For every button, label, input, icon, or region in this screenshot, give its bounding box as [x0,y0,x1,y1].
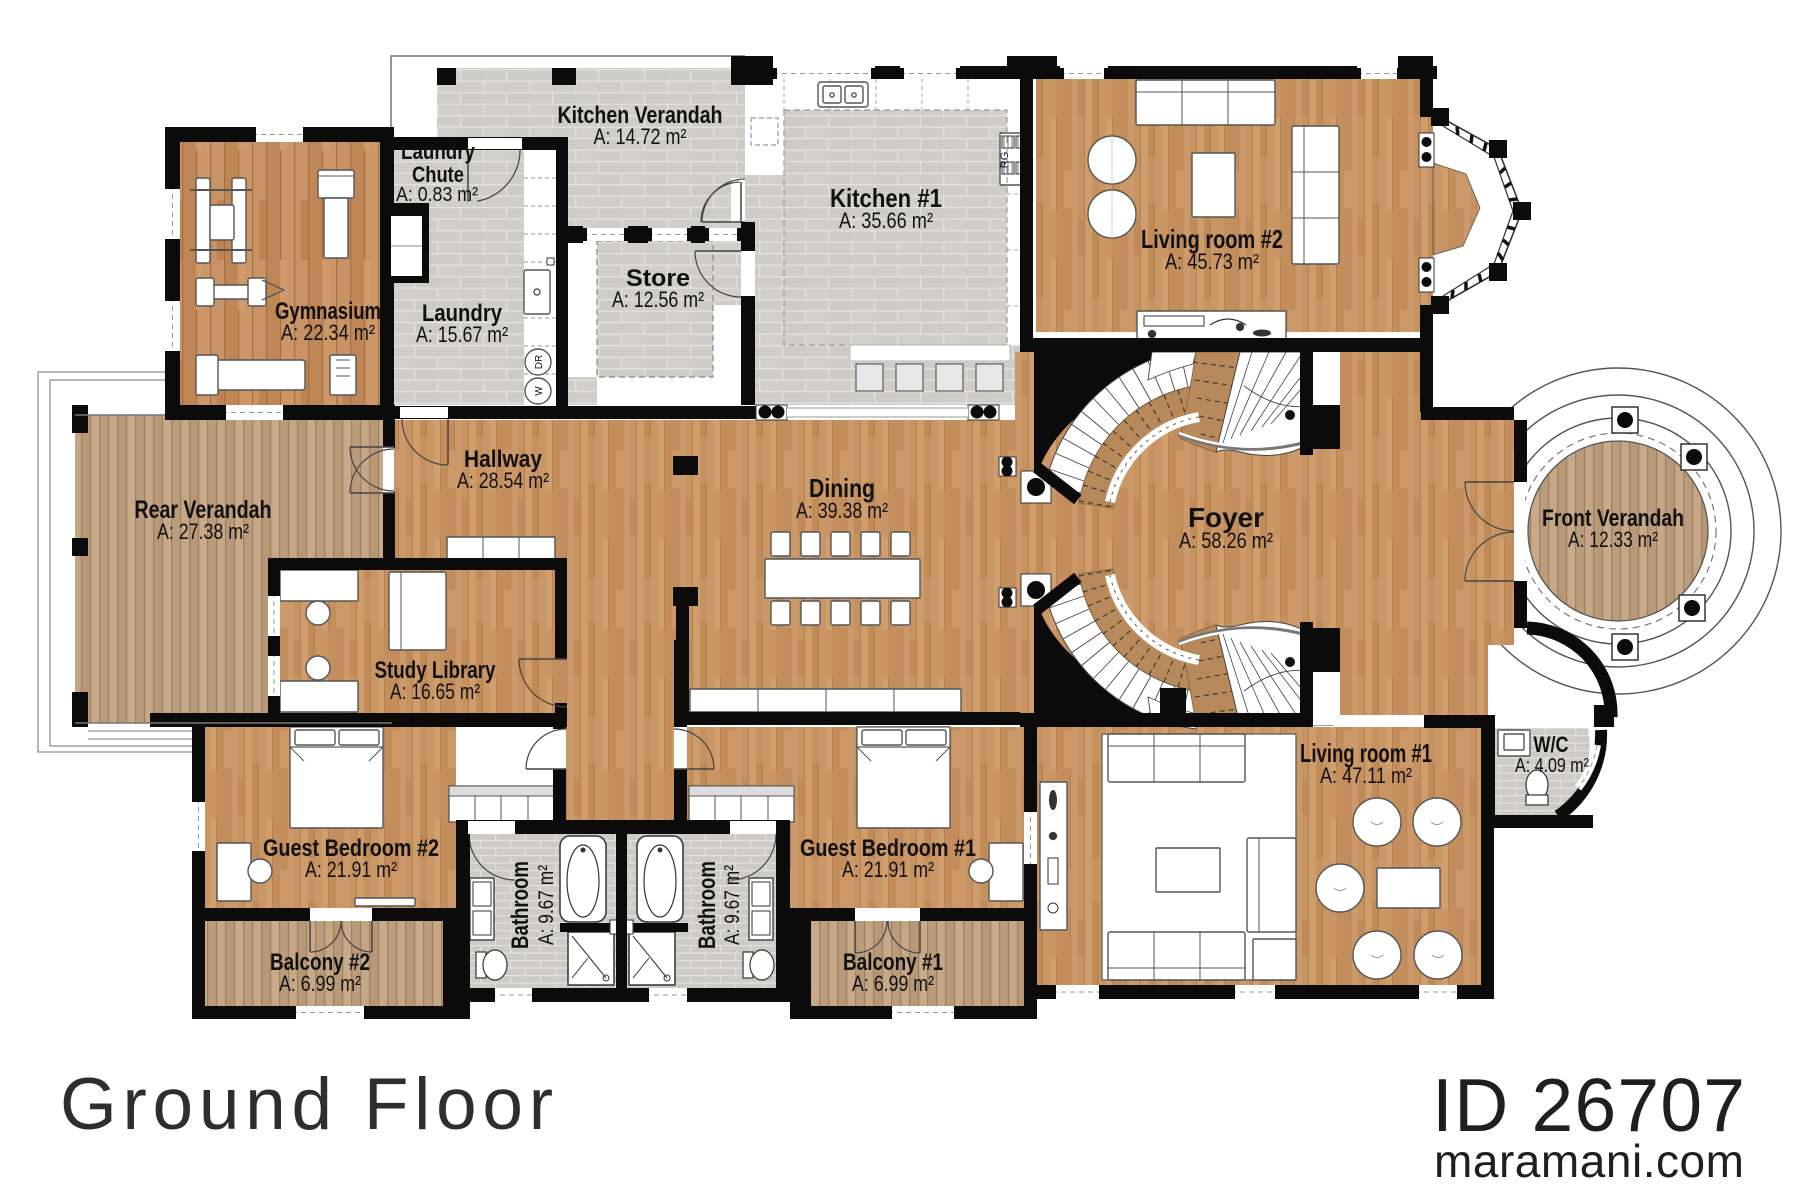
svg-text:A: 58.26 m²: A: 58.26 m² [1179,528,1273,553]
svg-text:A: 39.38 m²: A: 39.38 m² [796,498,888,523]
svg-text:A: 47.11 m²: A: 47.11 m² [1320,763,1412,788]
svg-text:A: 16.65 m²: A: 16.65 m² [390,679,480,704]
svg-text:DR: DR [534,355,545,369]
svg-text:RG: RG [999,152,1011,169]
svg-text:A: 45.73 m²: A: 45.73 m² [1165,249,1259,274]
svg-text:A: 14.72 m²: A: 14.72 m² [594,124,687,149]
svg-text:A: 12.56 m²: A: 12.56 m² [612,287,704,312]
svg-text:A: 4.09 m²: A: 4.09 m² [1515,755,1589,777]
svg-text:A: 28.54 m²: A: 28.54 m² [457,468,549,493]
svg-text:Laundry: Laundry [401,139,476,164]
svg-text:maramani.com: maramani.com [1434,1135,1744,1187]
svg-text:A: 6.99 m²: A: 6.99 m² [852,971,934,996]
svg-text:A: 9.67 m²: A: 9.67 m² [721,865,744,945]
svg-text:A: 21.91 m²: A: 21.91 m² [842,857,934,882]
svg-text:W/C: W/C [1534,732,1569,757]
svg-text:A: 21.91 m²: A: 21.91 m² [305,857,397,882]
svg-text:A: 6.99 m²: A: 6.99 m² [279,971,361,996]
svg-text:A: 22.34 m²: A: 22.34 m² [281,320,375,345]
svg-text:A: 12.33 m²: A: 12.33 m² [1568,527,1658,552]
svg-text:A: 9.67 m²: A: 9.67 m² [535,865,558,945]
svg-text:A: 15.67 m²: A: 15.67 m² [416,322,508,347]
svg-text:A: 35.66 m²: A: 35.66 m² [839,208,933,233]
svg-text:Bathroom: Bathroom [507,861,534,949]
svg-text:A: 27.38 m²: A: 27.38 m² [157,519,249,544]
svg-text:Bathroom: Bathroom [694,861,721,949]
svg-text:A: 0.83 m²: A: 0.83 m² [396,184,478,206]
svg-text:W: W [534,386,545,396]
